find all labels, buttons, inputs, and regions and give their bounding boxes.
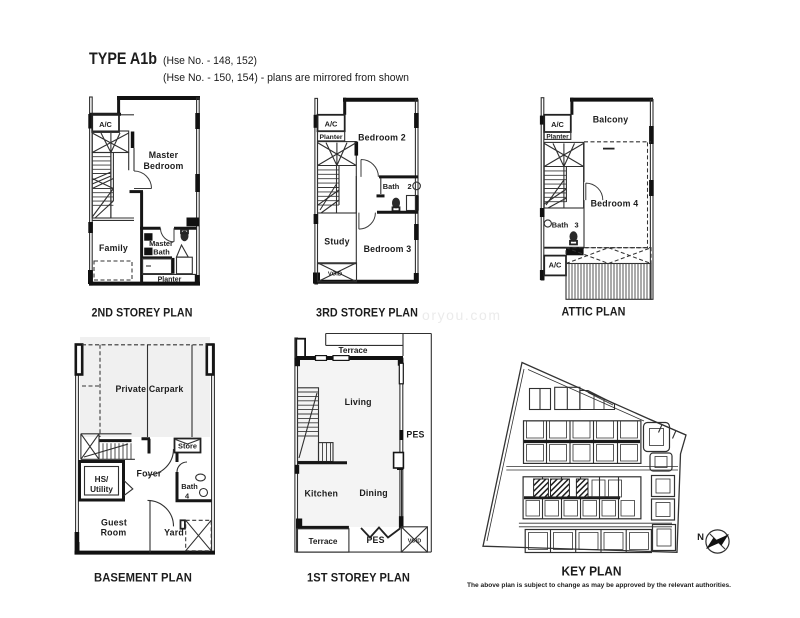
svg-text:2ND STOREY PLAN: 2ND STOREY PLAN xyxy=(92,306,193,320)
svg-text:Planter: Planter xyxy=(319,134,342,141)
svg-text:3RD STOREY PLAN: 3RD STOREY PLAN xyxy=(316,306,418,320)
svg-text:KEY PLAN: KEY PLAN xyxy=(562,564,622,579)
svg-text:A/C: A/C xyxy=(551,120,564,129)
svg-text:Bedroom 2: Bedroom 2 xyxy=(358,133,406,143)
svg-text:Private Carpark: Private Carpark xyxy=(115,384,183,394)
svg-text:The above plan is subject to c: The above plan is subject to change as m… xyxy=(467,582,731,589)
svg-text:VOID: VOID xyxy=(408,539,421,545)
svg-text:A/C: A/C xyxy=(325,120,338,129)
svg-text:Bath: Bath xyxy=(153,248,170,257)
svg-text:Planter: Planter xyxy=(158,277,182,284)
svg-text:(Hse No. - 148, 152): (Hse No. - 148, 152) xyxy=(163,55,257,67)
svg-text:Master: Master xyxy=(149,150,179,160)
svg-text:Living: Living xyxy=(345,397,372,407)
svg-text:(Hse No. - 150, 154) - plans a: (Hse No. - 150, 154) - plans are mirrore… xyxy=(163,72,409,84)
svg-text:Study: Study xyxy=(324,237,349,247)
svg-text:TYPE A1b: TYPE A1b xyxy=(89,50,157,68)
svg-text:Dining: Dining xyxy=(359,488,388,498)
svg-text:Planter: Planter xyxy=(546,133,569,140)
svg-text:VOID: VOID xyxy=(328,272,342,278)
svg-text:Terrace: Terrace xyxy=(339,346,368,355)
svg-text:2: 2 xyxy=(407,182,411,191)
svg-text:Store: Store xyxy=(178,442,197,451)
svg-text:1ST STOREY PLAN: 1ST STOREY PLAN xyxy=(307,571,410,585)
svg-text:3: 3 xyxy=(574,221,578,230)
svg-text:A/C: A/C xyxy=(99,120,112,129)
svg-text:Family: Family xyxy=(99,243,128,253)
svg-text:Bath: Bath xyxy=(181,482,198,491)
svg-text:Balcony: Balcony xyxy=(593,115,629,125)
svg-text:Kitchen: Kitchen xyxy=(304,488,338,498)
svg-text:PES: PES xyxy=(406,430,424,440)
svg-text:Terrace: Terrace xyxy=(309,537,338,546)
svg-text:Bath: Bath xyxy=(552,221,569,230)
svg-text:Bedroom 3: Bedroom 3 xyxy=(364,244,412,254)
svg-text:Foyer: Foyer xyxy=(137,469,162,479)
svg-text:BASEMENT PLAN: BASEMENT PLAN xyxy=(94,571,192,585)
svg-text:Guest: Guest xyxy=(101,518,127,528)
svg-text:Room: Room xyxy=(101,528,127,538)
svg-text:oryou.com: oryou.com xyxy=(422,307,500,323)
svg-text:HS/: HS/ xyxy=(95,475,109,484)
svg-text:A/C: A/C xyxy=(549,261,562,270)
svg-text:Bedroom: Bedroom xyxy=(143,161,183,171)
svg-text:Bedroom 4: Bedroom 4 xyxy=(591,199,639,209)
svg-text:Utility: Utility xyxy=(90,485,113,494)
svg-text:N: N xyxy=(697,532,704,543)
svg-text:ATTIC PLAN: ATTIC PLAN xyxy=(562,305,626,319)
svg-text:Bath: Bath xyxy=(383,182,400,191)
